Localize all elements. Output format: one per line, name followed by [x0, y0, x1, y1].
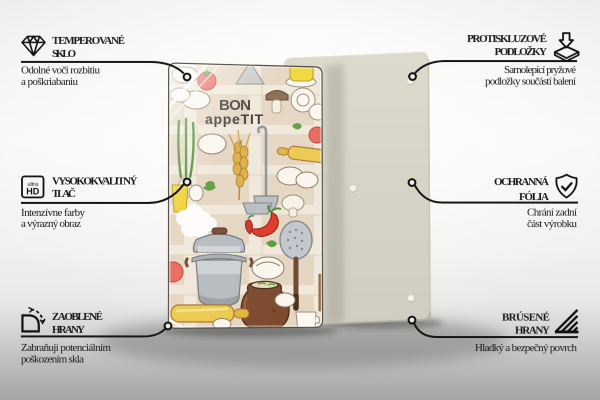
svg-text:HRANY: HRANY: [515, 325, 550, 337]
svg-text:a poškriabaniu: a poškriabaniu: [21, 76, 79, 88]
svg-text:Chrání zadní: Chrání zadní: [527, 207, 577, 219]
svg-text:a výrazný obraz: a výrazný obraz: [21, 218, 81, 230]
svg-text:OCHRANNÁ: OCHRANNÁ: [494, 176, 549, 188]
svg-text:HRANY: HRANY: [52, 324, 85, 336]
svg-text:PODLOŽKY: PODLOŽKY: [495, 46, 548, 58]
svg-text:Zabraňují potenciálním: Zabraňují potenciálním: [21, 342, 111, 354]
svg-text:FÓLIA: FÓLIA: [519, 191, 549, 203]
svg-text:PROTISKLUZOVÉ: PROTISKLUZOVÉ: [467, 33, 547, 45]
svg-text:Samolepící pryžové: Samolepící pryžové: [504, 64, 576, 76]
svg-text:SKLO: SKLO: [52, 48, 76, 60]
svg-text:HD: HD: [26, 186, 40, 196]
svg-text:BRÚSENÉ: BRÚSENÉ: [502, 312, 550, 324]
svg-text:Odolné voči rozbitiu: Odolné voči rozbitiu: [21, 64, 101, 76]
svg-text:ZAOBLENÉ: ZAOBLENÉ: [52, 311, 103, 323]
svg-text:poškozením skla: poškozením skla: [21, 353, 84, 365]
svg-text:TEMPEROVANÉ: TEMPEROVANÉ: [52, 35, 125, 47]
svg-text:část výrobku: část výrobku: [527, 218, 578, 230]
svg-text:Hladký a bezpečný povrch: Hladký a bezpečný povrch: [475, 342, 578, 354]
svg-text:TLAČ: TLAČ: [52, 187, 76, 200]
svg-text:VYSOKOKVALITNÝ: VYSOKOKVALITNÝ: [52, 175, 138, 187]
svg-text:podložky součástí balení: podložky součástí balení: [485, 76, 576, 88]
